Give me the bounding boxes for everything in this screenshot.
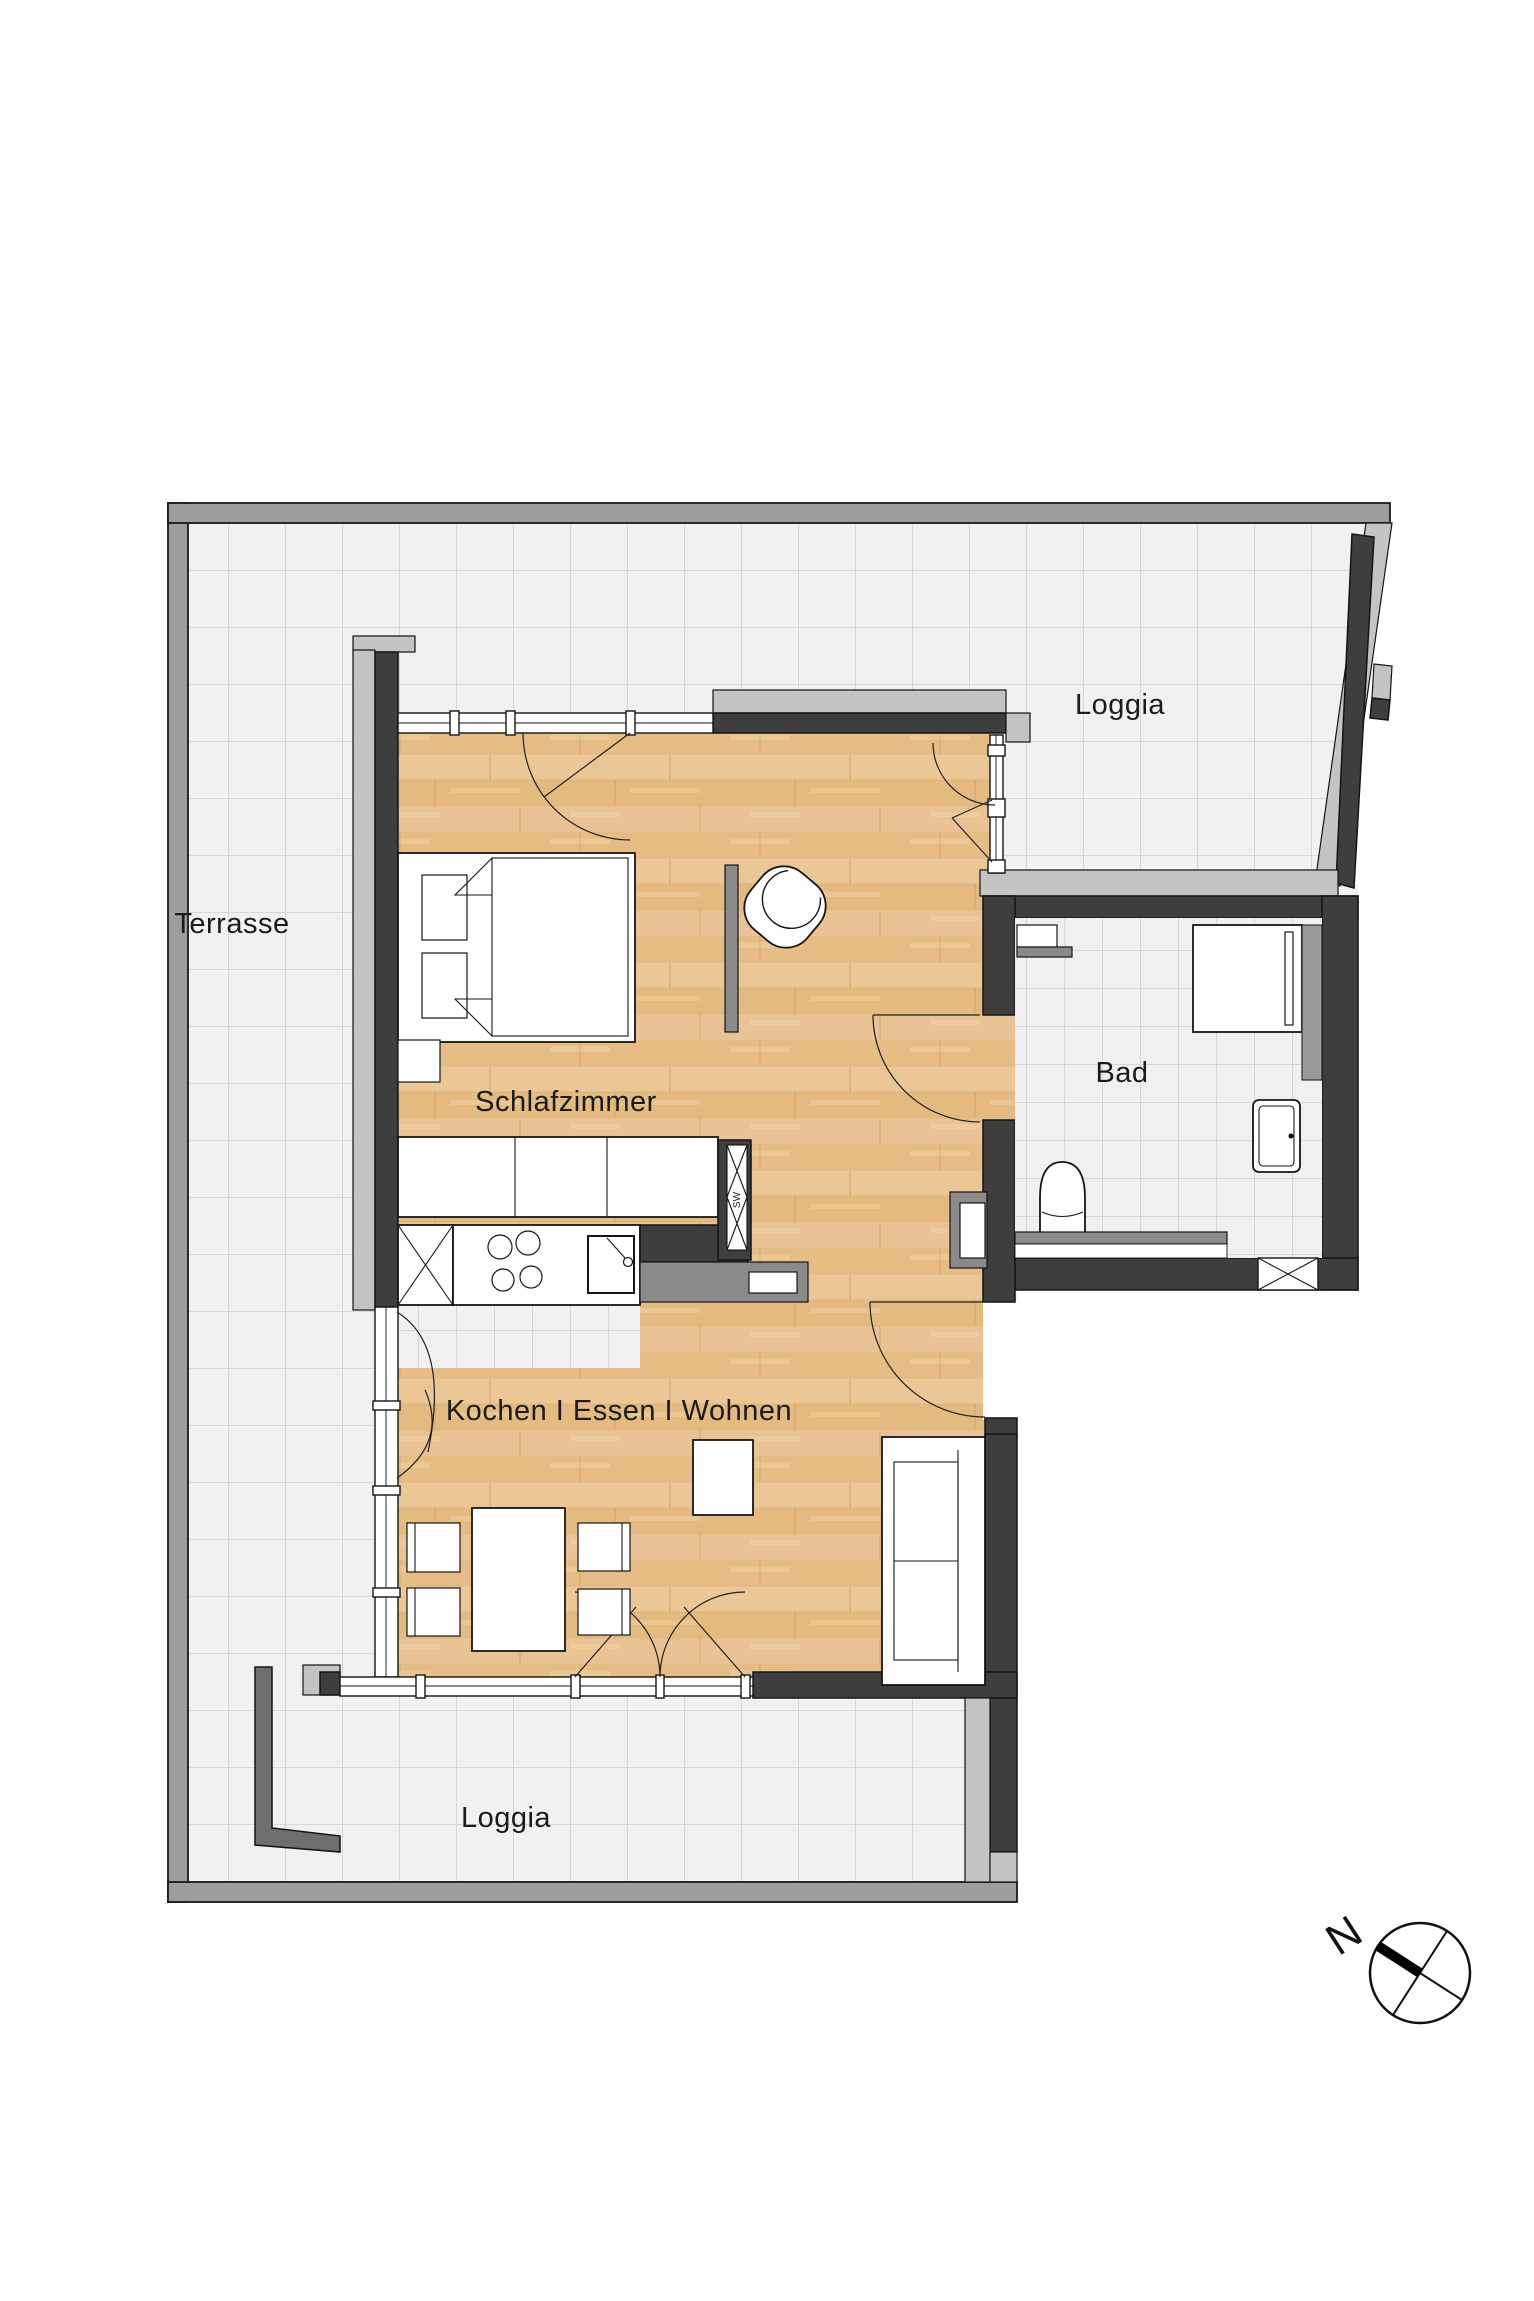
- loggia-bottom-parapet-right: [965, 1698, 990, 1882]
- label-terrasse: Terrasse: [174, 908, 289, 940]
- window-joint: [373, 1588, 400, 1597]
- floor-plan: SW Terrasse Loggia Bad Schlafzimmer Koch…: [0, 0, 1534, 2301]
- loggia-bottom-wall-right: [990, 1698, 1017, 1852]
- outer-band-left: [168, 503, 188, 1902]
- bathroom: [1015, 918, 1322, 1290]
- bath-wall-left-upper: [983, 896, 1015, 1015]
- bedside-cabinet: [398, 1040, 440, 1082]
- washbasin-drain: [1289, 1134, 1294, 1139]
- shower-glass-door: [1285, 932, 1293, 1025]
- mask-right-of-bath: [1358, 884, 1534, 1298]
- north-letter: N: [1317, 1907, 1370, 1965]
- window-joint: [656, 1675, 664, 1698]
- window-joint: [506, 711, 515, 735]
- window-joint: [416, 1675, 425, 1698]
- kitchen-island-niche: [749, 1272, 797, 1293]
- entry-door-threshold: [983, 1300, 1017, 1420]
- label-schlafzimmer: Schlafzimmer: [475, 1086, 657, 1118]
- loggia-corner-stub: [1006, 713, 1030, 742]
- label-bad: Bad: [1095, 1057, 1148, 1089]
- bath-wall-left-lower: [983, 1120, 1015, 1302]
- window-joint: [373, 1486, 400, 1495]
- loggia-bottom-wall-foot: [990, 1852, 1017, 1882]
- living-bottom-window: [340, 1677, 753, 1696]
- mask-bottom-right: [1017, 1290, 1534, 1906]
- left-wall: [375, 652, 398, 1307]
- left-wall-outer: [353, 650, 375, 1310]
- bath-wall-right: [1322, 896, 1358, 1290]
- window-joint: [988, 745, 1005, 756]
- label-loggia-bottom: Loggia: [461, 1802, 551, 1834]
- label-wohnbereich: Kochen I Essen I Wohnen: [446, 1395, 792, 1427]
- window-joint: [373, 1401, 400, 1410]
- bath-sliding-door: [1015, 1244, 1227, 1258]
- outer-band-bottom: [168, 1882, 1017, 1902]
- window-joint: [988, 799, 1005, 817]
- bath-wall-top: [985, 896, 1358, 918]
- top-wall-outer: [713, 690, 1006, 713]
- shower-side-panel: [1302, 925, 1322, 1080]
- window-joint: [450, 711, 459, 735]
- wood-floor-bath-door: [983, 1015, 1015, 1121]
- living-wall-right: [985, 1434, 1017, 1695]
- hob-burner: [492, 1269, 514, 1291]
- north-arrow: [1378, 1946, 1420, 1973]
- bath-door-track: [1015, 1232, 1227, 1244]
- shaft-label: SW: [732, 1191, 743, 1208]
- dining-table: [472, 1508, 565, 1651]
- bath-niche: [1017, 925, 1057, 947]
- hob-burner: [488, 1235, 512, 1259]
- bed-pillow-left: [422, 875, 467, 940]
- pier-bottom-left: [320, 1672, 340, 1695]
- hob-burner: [516, 1231, 540, 1255]
- wall-niche-inner: [960, 1203, 985, 1258]
- wardrobe: [398, 1137, 718, 1217]
- toilet: [1040, 1162, 1085, 1243]
- top-wall: [713, 713, 1006, 733]
- label-loggia-top: Loggia: [1075, 689, 1165, 721]
- bath-niche-shelf: [1017, 947, 1072, 957]
- kitchen-floor-tiles: [398, 1305, 640, 1368]
- window-joint: [988, 860, 1005, 873]
- faucet: [624, 1258, 633, 1267]
- bed-pillow-right: [422, 953, 467, 1018]
- compass: N: [1317, 1907, 1470, 2023]
- window-joint: [626, 711, 635, 735]
- window-joint: [571, 1675, 580, 1698]
- hob-burner: [520, 1266, 542, 1288]
- window-joint: [741, 1675, 750, 1698]
- coffee-table: [693, 1440, 753, 1515]
- loggia-parapet: [980, 870, 1338, 896]
- sideboard: [725, 865, 738, 1032]
- slant-wall-notch-dark: [1370, 698, 1390, 720]
- slant-wall-notch-light: [1372, 664, 1392, 700]
- outer-band-top: [168, 503, 1390, 523]
